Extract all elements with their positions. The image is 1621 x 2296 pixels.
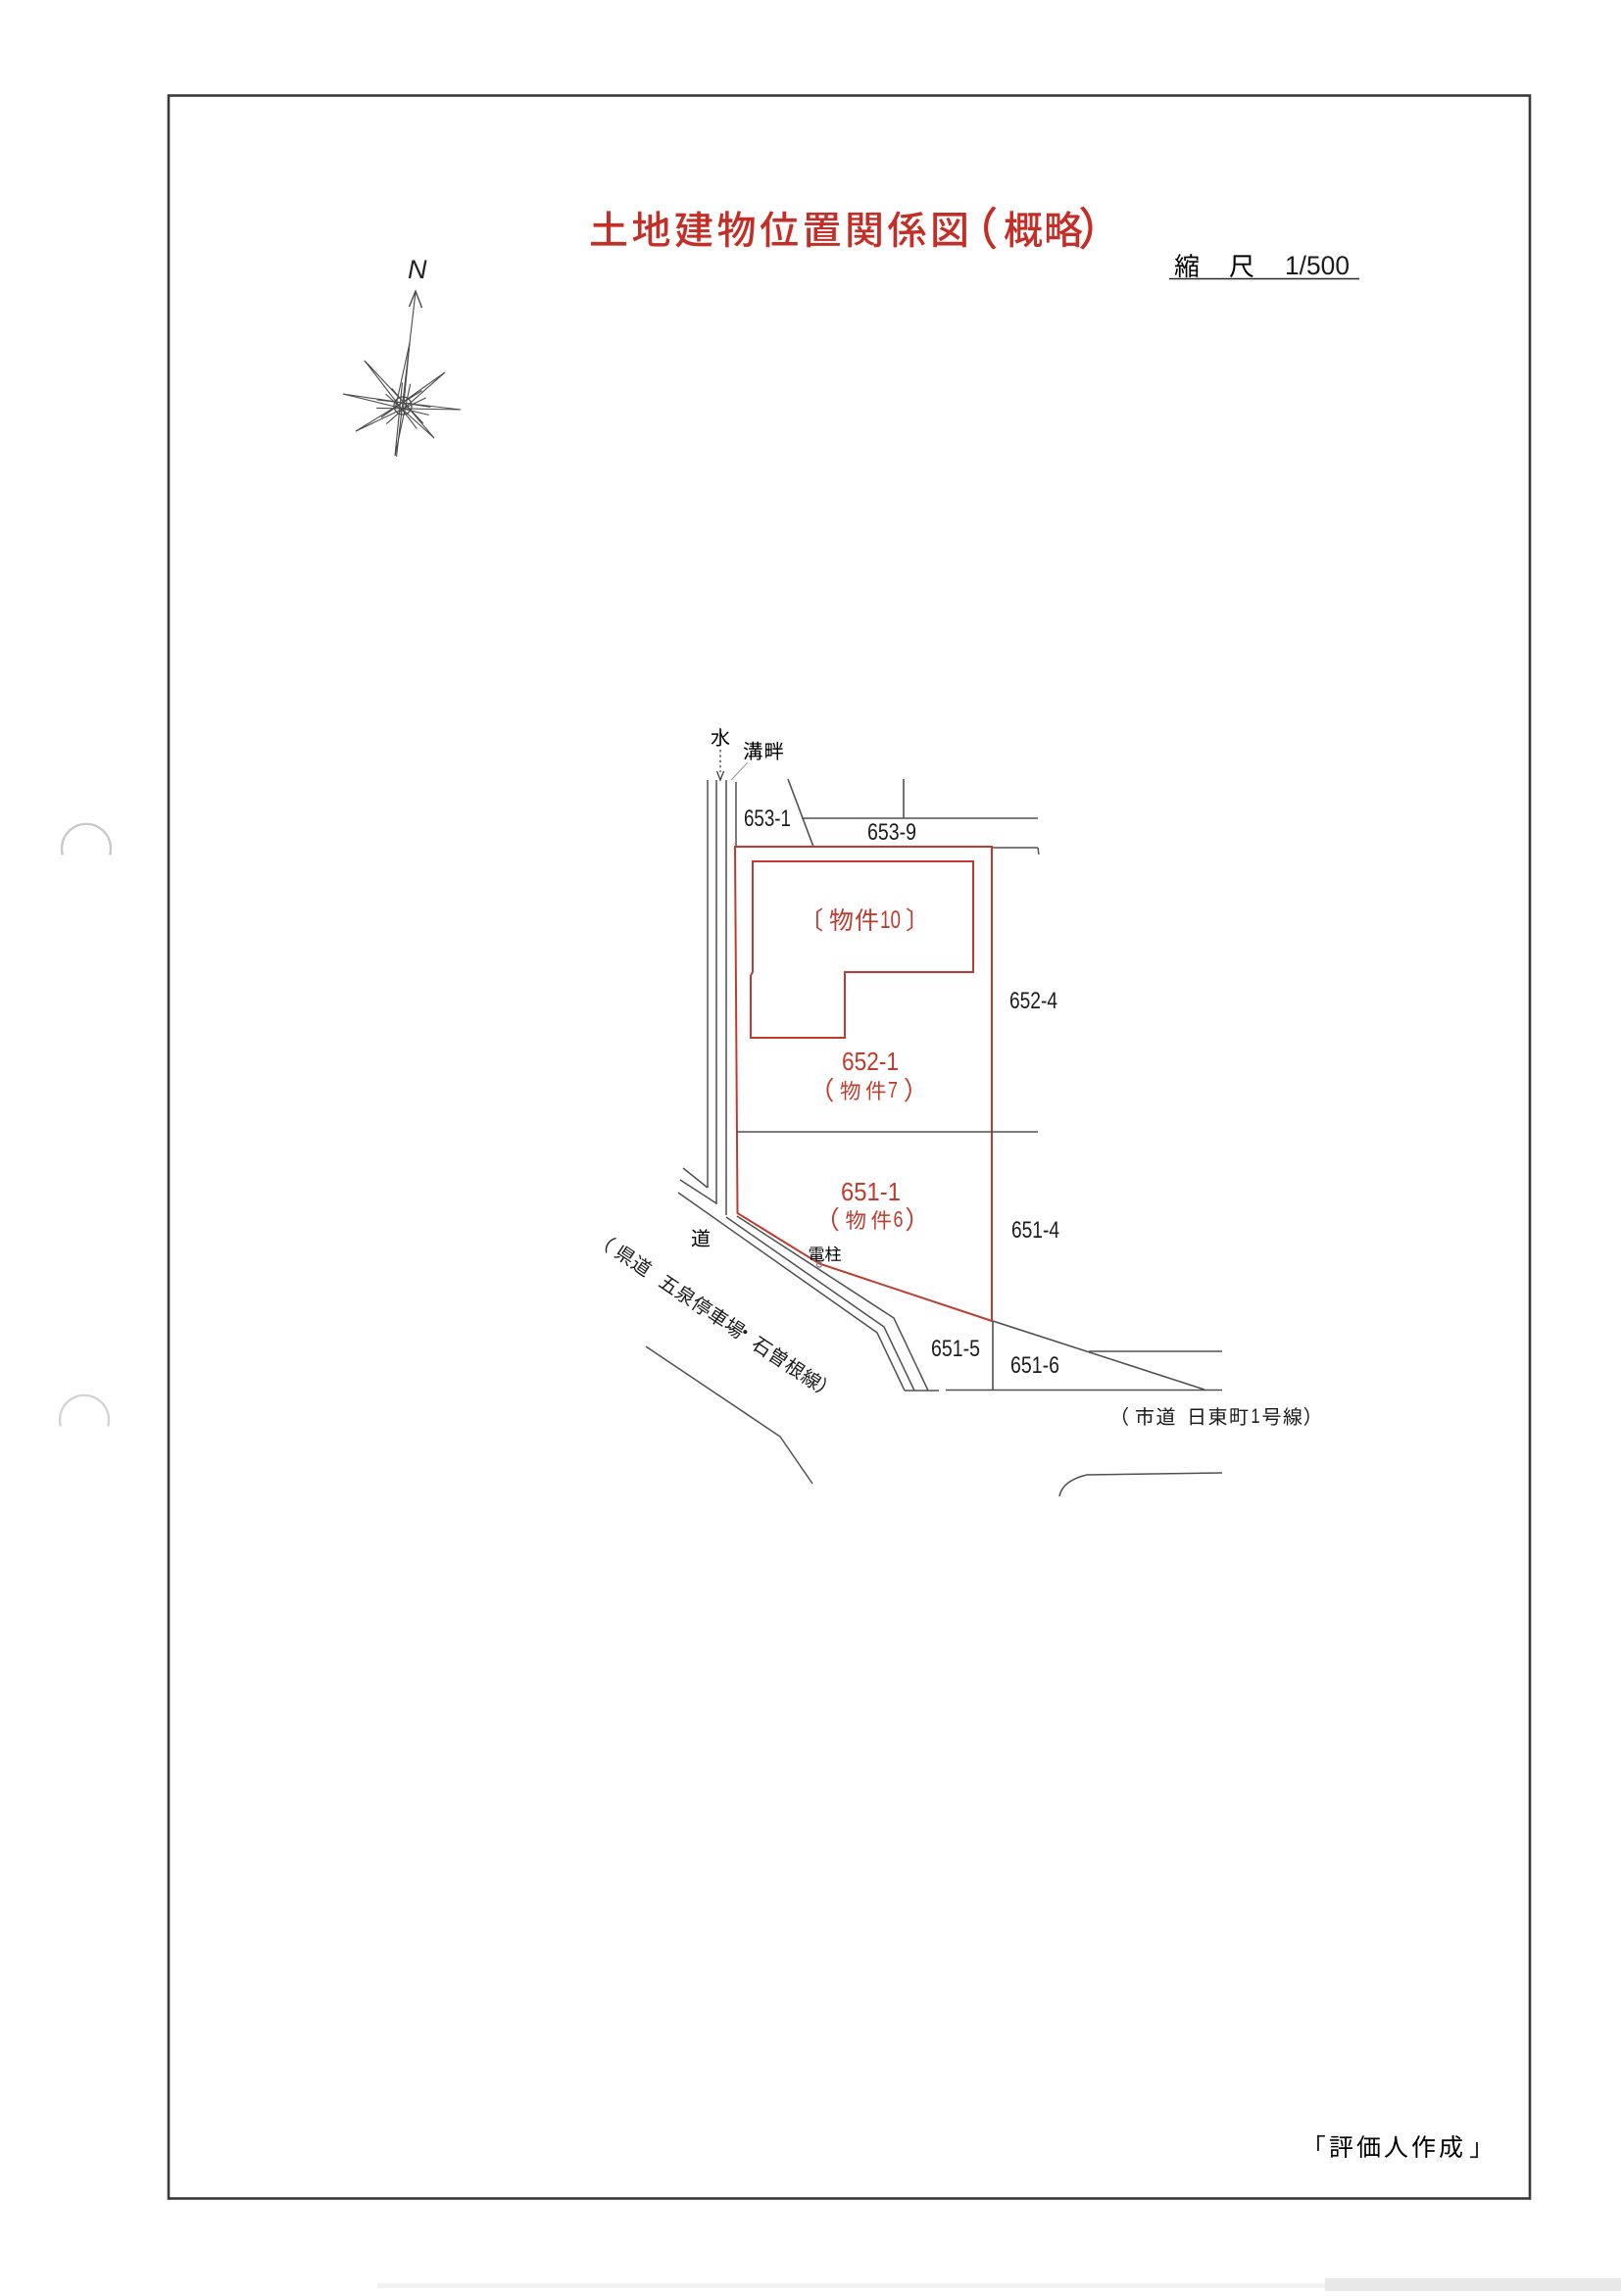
svg-text:7: 7 [888,1077,898,1102]
svg-text:653-1: 653-1 [744,806,791,832]
svg-text:N: N [408,255,427,284]
svg-text:1/500: 1/500 [1285,251,1350,280]
svg-text:653-9: 653-9 [867,819,916,846]
svg-text:651-5: 651-5 [931,1336,980,1362]
svg-text:1: 1 [1252,1405,1260,1428]
svg-text:652-4: 652-4 [1009,988,1057,1014]
svg-text:6: 6 [894,1206,904,1232]
svg-text:651-4: 651-4 [1011,1217,1059,1244]
svg-text:10: 10 [880,906,901,934]
svg-text:652-1: 652-1 [842,1047,899,1076]
svg-text:651-6: 651-6 [1010,1352,1059,1379]
svg-text:651-1: 651-1 [841,1177,901,1206]
